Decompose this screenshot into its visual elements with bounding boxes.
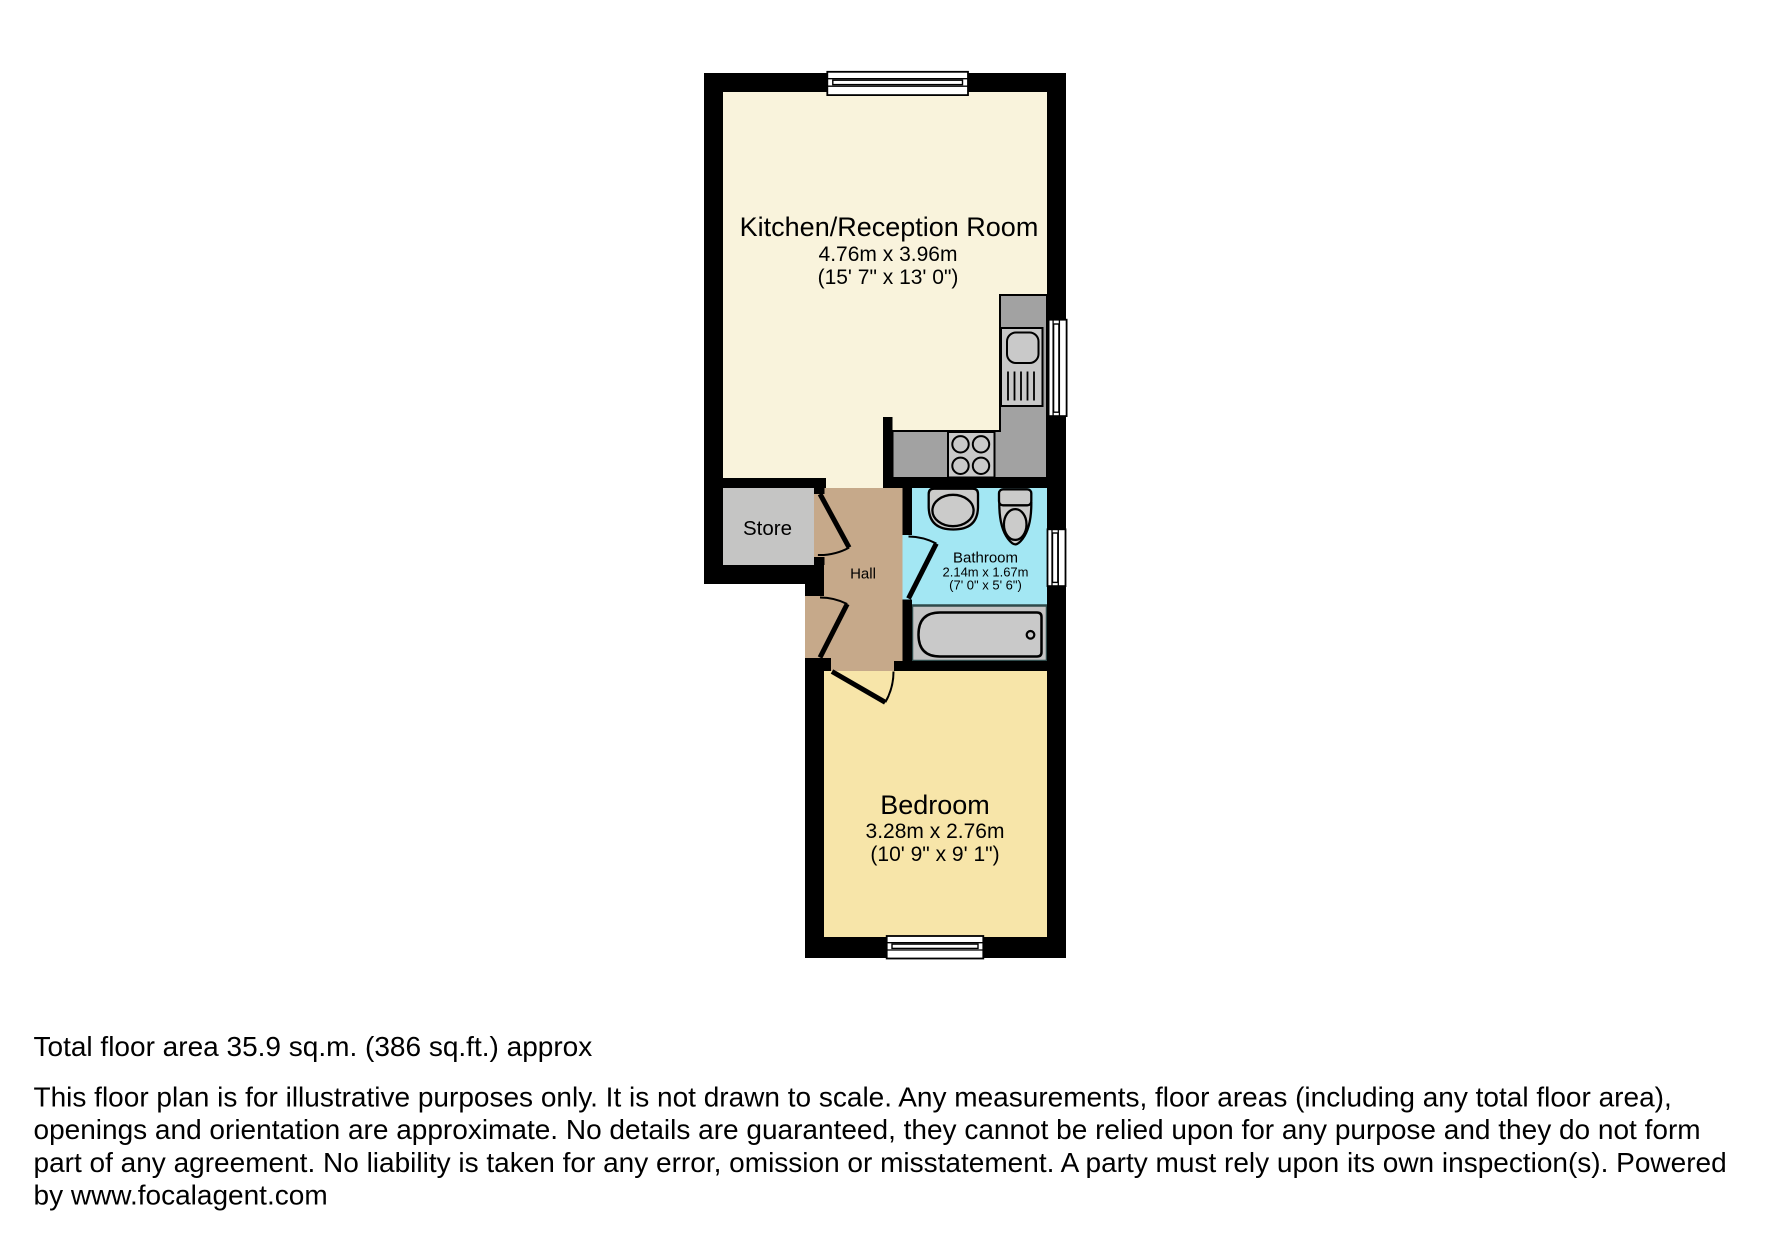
svg-text:4.76m x 3.96m: 4.76m x 3.96m [819, 243, 958, 266]
svg-text:Hall: Hall [850, 566, 876, 583]
svg-text:part of any agreement. No liab: part of any agreement. No liability is t… [34, 1147, 1727, 1178]
svg-text:3.28m x 2.76m: 3.28m x 2.76m [866, 820, 1005, 843]
svg-text:(10' 9" x 9' 1"): (10' 9" x 9' 1") [870, 843, 999, 866]
svg-text:by www.focalagent.com: by www.focalagent.com [34, 1180, 328, 1211]
svg-text:(15' 7" x 13' 0"): (15' 7" x 13' 0") [818, 266, 959, 289]
svg-text:This floor plan is for illustr: This floor plan is for illustrative purp… [34, 1082, 1672, 1113]
svg-text:Total floor area 35.9 sq.m. (3: Total floor area 35.9 sq.m. (386 sq.ft.)… [34, 1031, 593, 1062]
svg-text:Store: Store [743, 517, 792, 540]
svg-text:Bedroom: Bedroom [880, 790, 990, 820]
svg-text:openings and orientation are a: openings and orientation are approximate… [34, 1114, 1701, 1145]
svg-text:(7' 0" x 5' 6"): (7' 0" x 5' 6") [949, 578, 1022, 593]
svg-text:Kitchen/Reception Room: Kitchen/Reception Room [740, 212, 1039, 242]
